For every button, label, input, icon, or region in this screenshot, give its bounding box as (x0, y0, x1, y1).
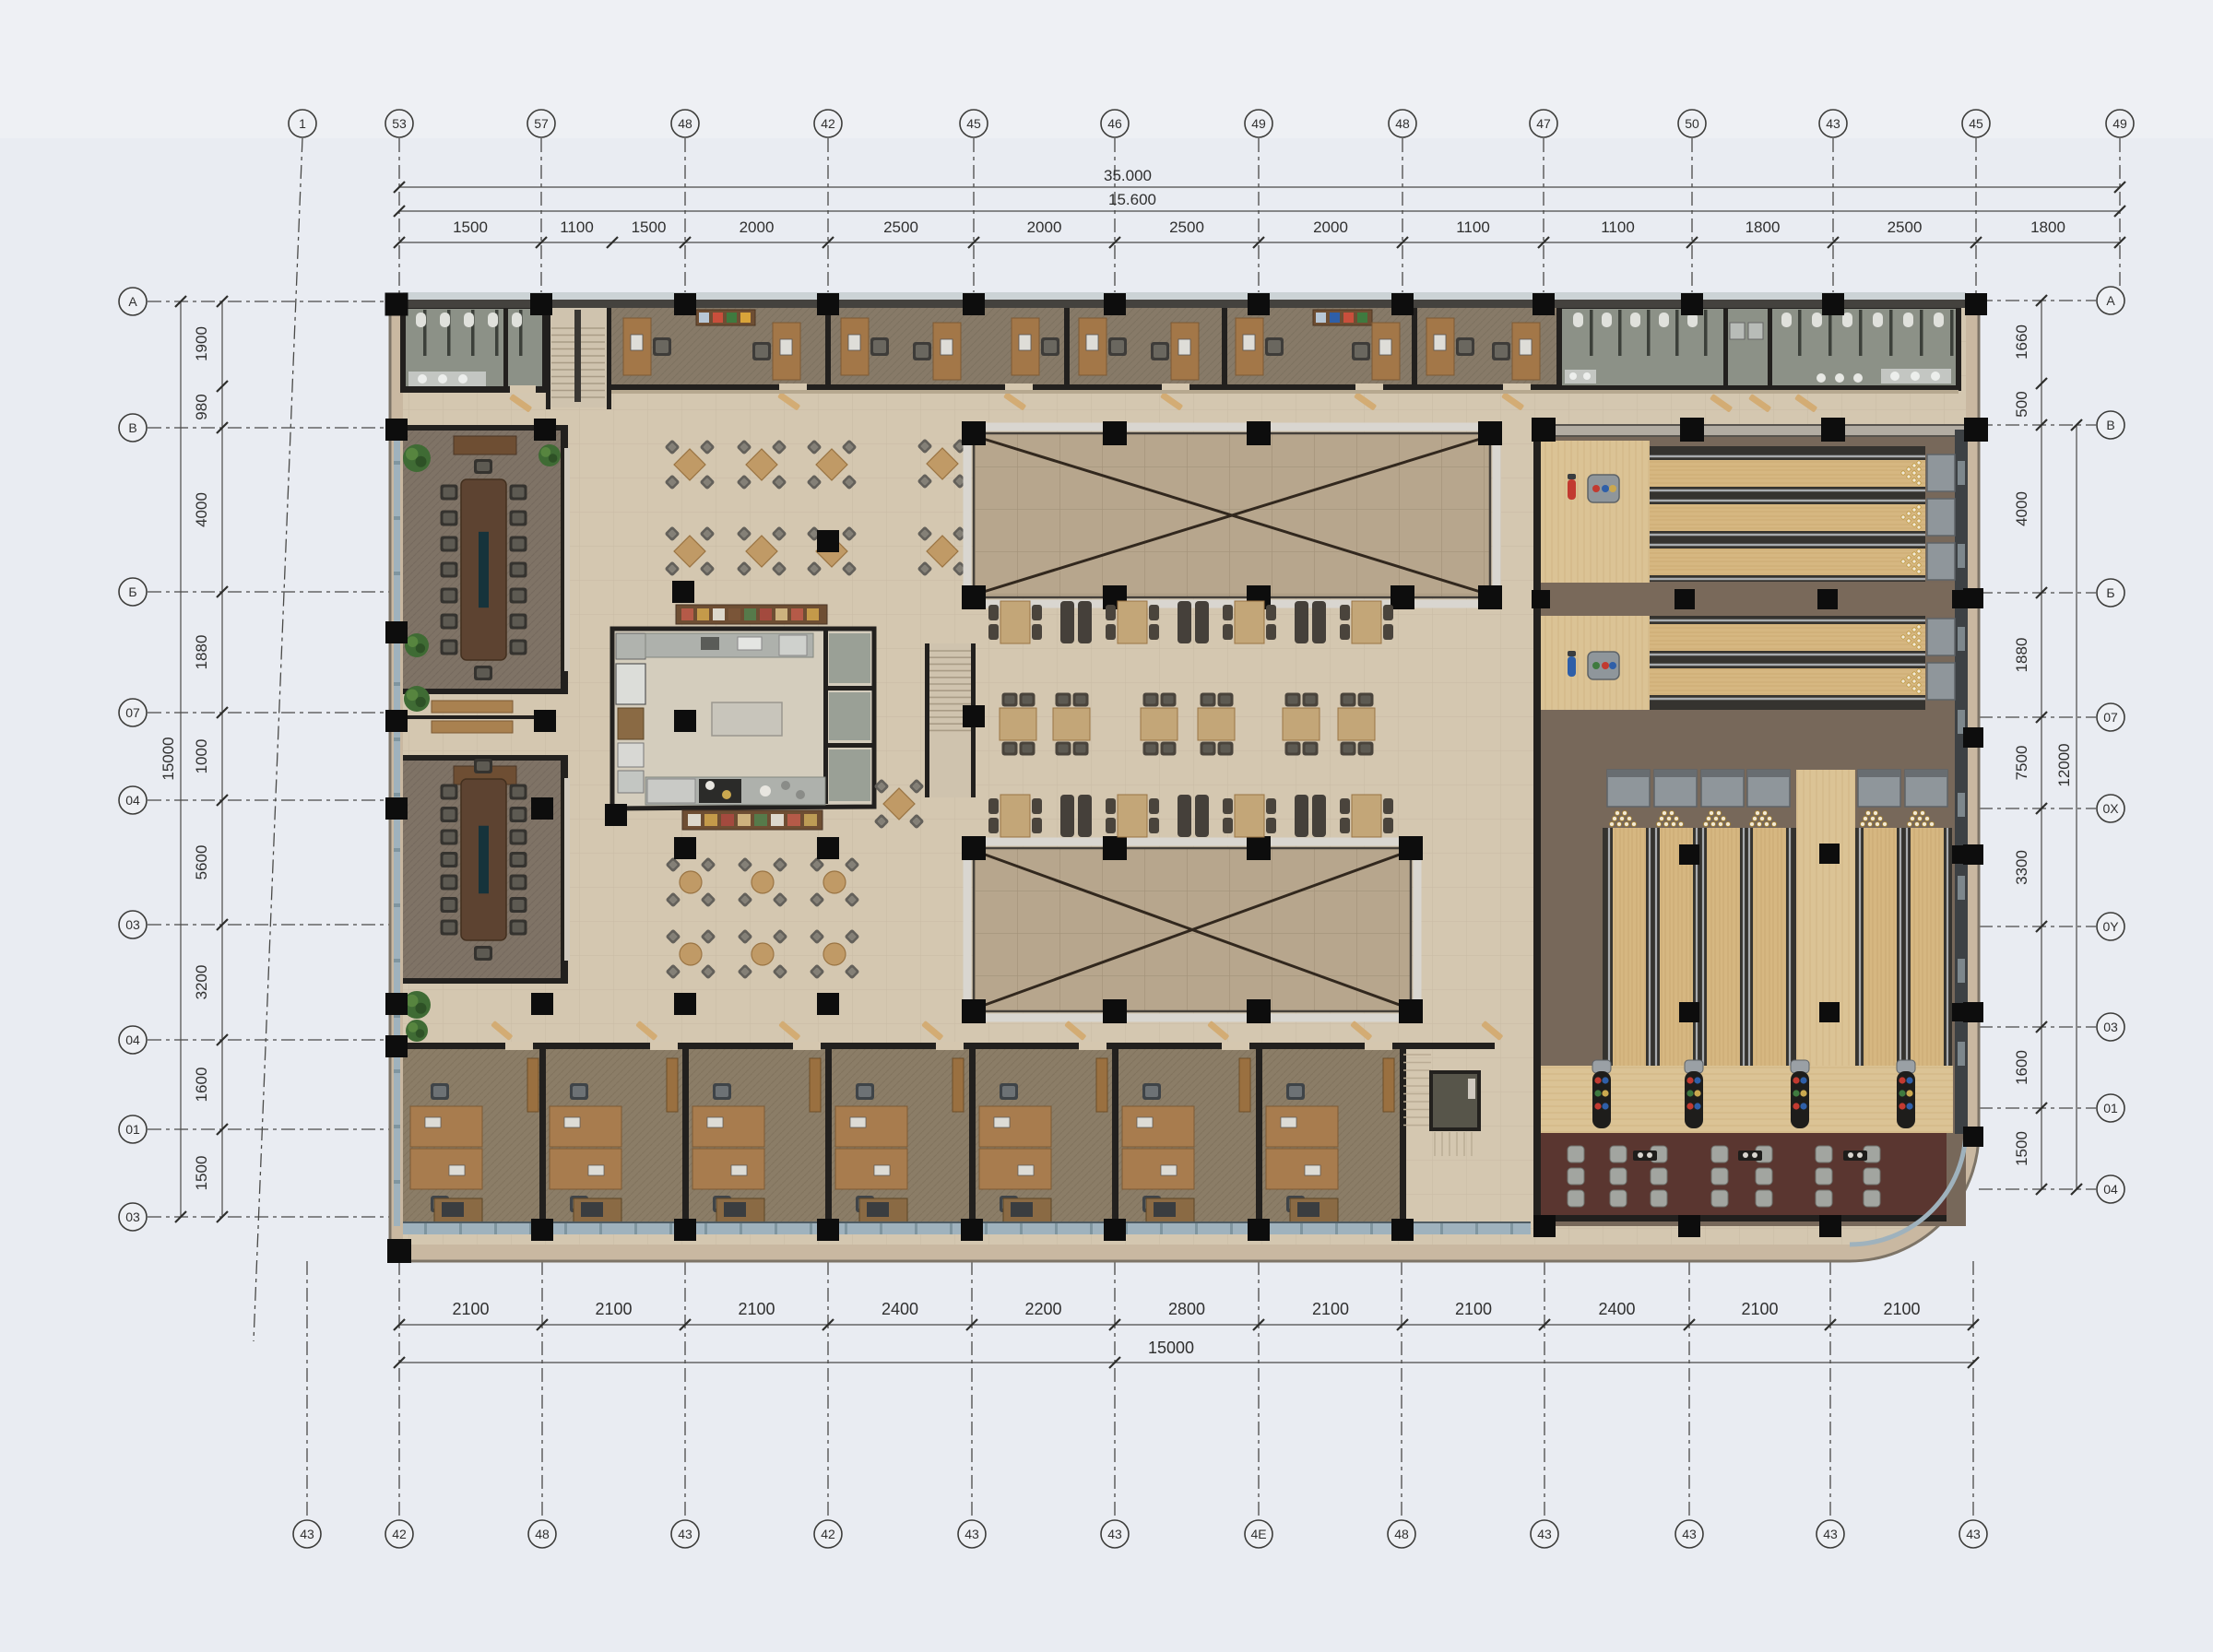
svg-text:0X: 0X (2102, 801, 2119, 816)
svg-text:2100: 2100 (1883, 1300, 1920, 1318)
svg-text:1100: 1100 (1601, 218, 1635, 236)
svg-text:1600: 1600 (2013, 1050, 2030, 1085)
svg-text:2500: 2500 (883, 218, 918, 236)
svg-text:04: 04 (125, 1032, 140, 1047)
svg-text:2500: 2500 (1888, 218, 1923, 236)
svg-text:53: 53 (392, 116, 407, 131)
svg-text:42: 42 (392, 1527, 407, 1541)
svg-text:1100: 1100 (1456, 218, 1490, 236)
svg-text:2100: 2100 (1741, 1300, 1778, 1318)
svg-text:2000: 2000 (740, 218, 775, 236)
svg-text:2100: 2100 (1312, 1300, 1349, 1318)
svg-text:35.000: 35.000 (1104, 167, 1152, 184)
svg-text:03: 03 (125, 1209, 140, 1224)
svg-text:A: A (2106, 293, 2115, 308)
svg-text:980: 980 (193, 394, 210, 419)
svg-text:42: 42 (821, 116, 835, 131)
svg-text:01: 01 (125, 1122, 140, 1137)
svg-text:2500: 2500 (1169, 218, 1204, 236)
svg-text:B: B (2106, 418, 2114, 432)
svg-text:57: 57 (534, 116, 549, 131)
svg-text:43: 43 (1966, 1527, 1981, 1541)
svg-text:Б: Б (128, 584, 136, 599)
svg-text:43: 43 (678, 1527, 692, 1541)
svg-text:49: 49 (1251, 116, 1266, 131)
svg-text:03: 03 (2103, 1020, 2118, 1034)
svg-text:4000: 4000 (2013, 491, 2030, 526)
svg-text:0Y: 0Y (2102, 919, 2119, 934)
svg-text:B: B (128, 420, 136, 435)
svg-text:1100: 1100 (560, 218, 594, 236)
svg-text:43: 43 (1537, 1527, 1552, 1541)
svg-text:1000: 1000 (193, 739, 210, 774)
svg-text:5600: 5600 (193, 845, 210, 880)
svg-text:2100: 2100 (595, 1300, 632, 1318)
svg-text:47: 47 (1536, 116, 1551, 131)
svg-text:1880: 1880 (193, 635, 210, 670)
svg-text:3200: 3200 (193, 965, 210, 1000)
svg-text:43: 43 (964, 1527, 979, 1541)
svg-text:42: 42 (821, 1527, 835, 1541)
svg-text:3300: 3300 (2013, 850, 2030, 885)
svg-text:1900: 1900 (193, 326, 210, 361)
svg-text:04: 04 (125, 793, 140, 808)
svg-text:2000: 2000 (1027, 218, 1062, 236)
svg-text:1880: 1880 (2013, 638, 2030, 673)
svg-text:48: 48 (1394, 1527, 1409, 1541)
svg-text:A: A (128, 294, 137, 309)
svg-text:48: 48 (535, 1527, 550, 1541)
svg-text:45: 45 (966, 116, 981, 131)
svg-text:1500: 1500 (453, 218, 488, 236)
svg-text:49: 49 (2112, 116, 2127, 131)
svg-text:43: 43 (1823, 1527, 1838, 1541)
svg-text:4000: 4000 (193, 492, 210, 527)
svg-text:45: 45 (1969, 116, 1983, 131)
svg-text:04: 04 (2103, 1182, 2118, 1197)
svg-text:1500: 1500 (2013, 1131, 2030, 1166)
svg-text:03: 03 (125, 917, 140, 932)
svg-text:2000: 2000 (1313, 218, 1348, 236)
svg-text:43: 43 (1107, 1527, 1122, 1541)
svg-text:46: 46 (1107, 116, 1122, 131)
svg-text:Б: Б (2106, 585, 2114, 600)
svg-text:1600: 1600 (193, 1068, 210, 1103)
svg-text:2100: 2100 (1455, 1300, 1492, 1318)
svg-text:2400: 2400 (1598, 1300, 1635, 1318)
svg-text:1500: 1500 (193, 1156, 210, 1191)
svg-text:2100: 2100 (738, 1300, 775, 1318)
svg-text:50: 50 (1685, 116, 1699, 131)
svg-text:1: 1 (299, 116, 306, 131)
svg-text:1800: 1800 (1746, 218, 1781, 236)
svg-text:07: 07 (125, 705, 140, 720)
svg-text:43: 43 (1682, 1527, 1697, 1541)
svg-text:500: 500 (2013, 391, 2030, 417)
svg-text:2800: 2800 (1168, 1300, 1205, 1318)
svg-text:2400: 2400 (882, 1300, 918, 1318)
svg-text:2200: 2200 (1024, 1300, 1061, 1318)
svg-text:48: 48 (1395, 116, 1410, 131)
svg-text:43: 43 (300, 1527, 314, 1541)
svg-text:48: 48 (678, 116, 692, 131)
svg-text:15000: 15000 (160, 737, 177, 780)
svg-text:07: 07 (2103, 710, 2118, 725)
svg-text:1800: 1800 (2030, 218, 2065, 236)
svg-text:43: 43 (1826, 116, 1840, 131)
svg-text:2100: 2100 (452, 1300, 489, 1318)
svg-text:4E: 4E (1250, 1527, 1266, 1541)
svg-text:15.600: 15.600 (1108, 191, 1156, 208)
svg-text:1660: 1660 (2013, 324, 2030, 360)
svg-text:12000: 12000 (2055, 743, 2073, 786)
svg-text:01: 01 (2103, 1101, 2118, 1115)
svg-text:15000: 15000 (1148, 1339, 1194, 1357)
svg-text:7500: 7500 (2013, 746, 2030, 781)
svg-text:1500: 1500 (632, 218, 667, 236)
